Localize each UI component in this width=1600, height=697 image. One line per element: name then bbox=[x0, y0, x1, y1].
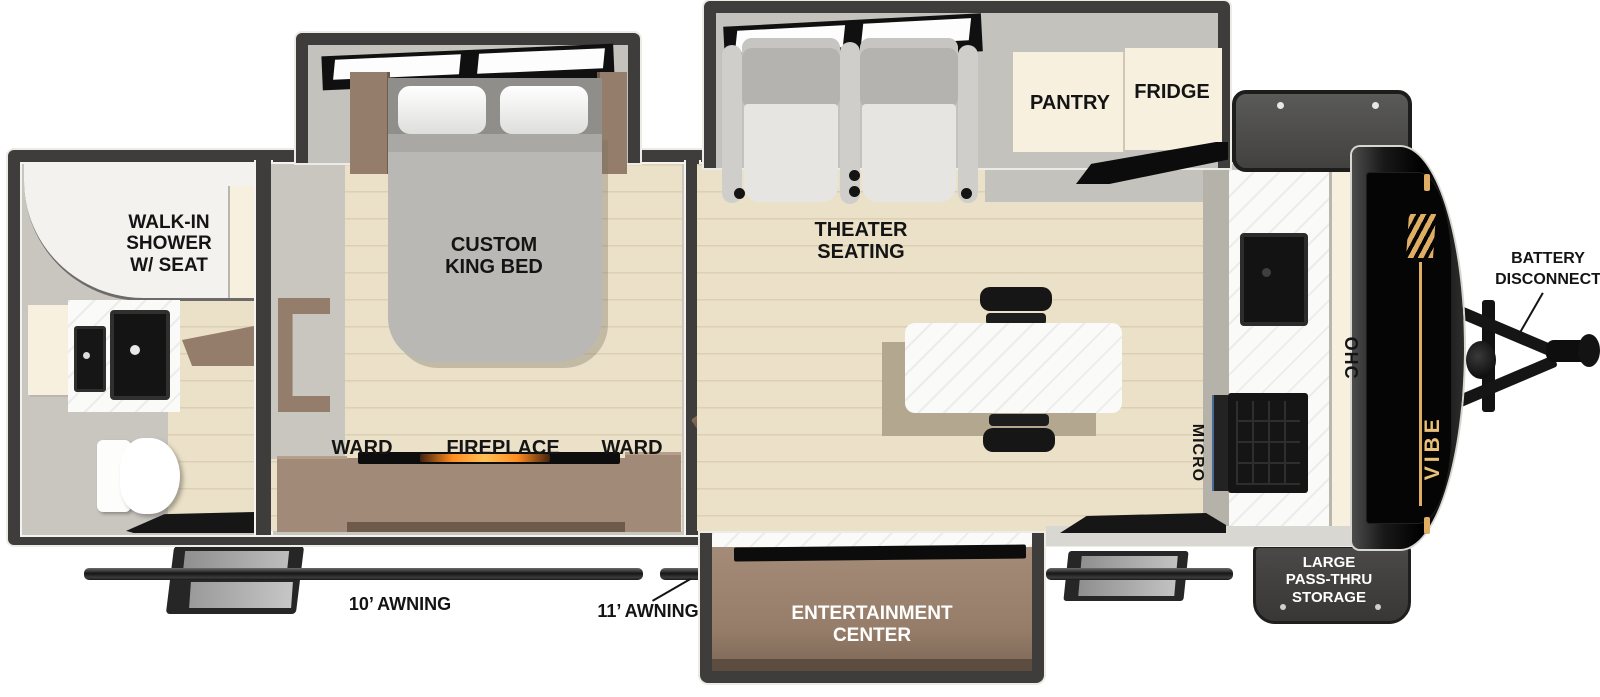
theater-arm-left bbox=[722, 45, 742, 203]
fridge-label: FRIDGE bbox=[1122, 81, 1222, 103]
ward-right-label: WARD bbox=[592, 437, 672, 459]
theater-line2: SEATING bbox=[817, 241, 904, 263]
sink-drain-small bbox=[83, 352, 90, 359]
bed-pillow-right bbox=[500, 86, 588, 134]
sink-drain-large bbox=[130, 345, 140, 355]
theater-seating-label: THEATER SEATING bbox=[786, 219, 936, 264]
cupholder-right bbox=[961, 188, 972, 199]
ward-left-label: WARD bbox=[322, 437, 402, 459]
battery-line1: BATTERY bbox=[1511, 250, 1585, 267]
wardrobe-right bbox=[625, 452, 681, 532]
island-chair-bottom bbox=[983, 428, 1055, 452]
brand-chevrons bbox=[1406, 214, 1436, 258]
pantry-label: PANTRY bbox=[1018, 92, 1122, 114]
battery-line2: DISCONNECT bbox=[1495, 271, 1600, 288]
fireplace-console bbox=[347, 458, 629, 532]
battery-pointer-line bbox=[1518, 292, 1544, 335]
kitchen-sink bbox=[1240, 233, 1308, 326]
theater-line1: THEATER bbox=[815, 219, 908, 241]
wardrobe-left bbox=[277, 456, 347, 532]
awning-rail-10ft bbox=[84, 568, 643, 580]
entertainment-line1: ENTERTAINMENT bbox=[791, 603, 952, 624]
shower-line2: SHOWER bbox=[126, 233, 212, 254]
floorplan-vibe-travel-trailer: VIBE WALK-IN SHOWER W/ SEAT CUSTOM KING … bbox=[0, 0, 1600, 697]
pass-thru-storage-label: LARGE PASS-THRU STORAGE bbox=[1259, 554, 1399, 606]
awning-rail-11ft-right bbox=[1046, 568, 1233, 580]
entertainment-line2: CENTER bbox=[833, 625, 911, 646]
sink-faucet bbox=[1262, 268, 1271, 277]
micro-label: MICRO bbox=[1188, 418, 1206, 488]
storage-line3: STORAGE bbox=[1292, 589, 1366, 606]
cupholder-left bbox=[734, 188, 745, 199]
theater-seat-left-back bbox=[742, 38, 840, 108]
island-chair-top bbox=[980, 287, 1052, 311]
battery-disconnect-label: BATTERY DISCONNECT bbox=[1494, 249, 1600, 291]
theater-seat-right-cushion bbox=[862, 104, 956, 202]
theater-seat-left-cushion bbox=[744, 104, 838, 202]
storage-line2: PASS-THRU bbox=[1286, 571, 1372, 588]
shower-line1: WALK-IN bbox=[128, 212, 209, 233]
bed-line2: KING BED bbox=[445, 256, 543, 278]
theater-arm-right bbox=[958, 45, 978, 203]
nightstand-left bbox=[350, 72, 390, 174]
vanity-sink-small bbox=[74, 326, 106, 392]
awning-11-label: 11’ AWNING bbox=[578, 601, 718, 621]
cupholder-center-1 bbox=[849, 170, 860, 181]
range-burner-grates bbox=[1236, 401, 1300, 485]
bed-pillow-left bbox=[398, 86, 486, 134]
king-bed-label: CUSTOM KING BED bbox=[418, 234, 570, 279]
awning-10-label: 10’ AWNING bbox=[330, 594, 470, 614]
hitch-coupler-knob bbox=[1578, 334, 1600, 367]
range-front-panel bbox=[1212, 395, 1228, 491]
cap-gold-tick-top bbox=[1424, 174, 1430, 191]
bathroom-cabinet-tall bbox=[230, 186, 254, 298]
entertainment-center-label: ENTERTAINMENT CENTER bbox=[762, 603, 982, 647]
island-countertop bbox=[905, 323, 1122, 413]
shower-line3: W/ SEAT bbox=[130, 255, 208, 276]
brand-logo: VIBE bbox=[1421, 413, 1445, 483]
cap-gold-tick-bottom bbox=[1424, 517, 1430, 534]
tank-cover-screw-right bbox=[1372, 102, 1379, 109]
ohc-label: OHC bbox=[1341, 323, 1361, 393]
hitch-jack-wheel bbox=[1466, 341, 1496, 379]
toilet-bowl bbox=[120, 438, 180, 514]
bed-line1: CUSTOM bbox=[451, 234, 537, 256]
walk-in-shower-label: WALK-IN SHOWER W/ SEAT bbox=[108, 212, 230, 276]
tank-cover-screw-left bbox=[1277, 102, 1284, 109]
fireplace-label: FIREPLACE bbox=[428, 437, 578, 459]
entry-step-left-tread-2 bbox=[189, 582, 293, 608]
awning-11-pointer-line bbox=[652, 578, 691, 602]
theater-seat-right-back bbox=[860, 38, 958, 108]
vanity-cabinet-left bbox=[28, 305, 68, 395]
vanity-sink-large bbox=[110, 310, 170, 400]
cupholder-center-2 bbox=[849, 186, 860, 197]
storage-line1: LARGE bbox=[1303, 554, 1356, 571]
